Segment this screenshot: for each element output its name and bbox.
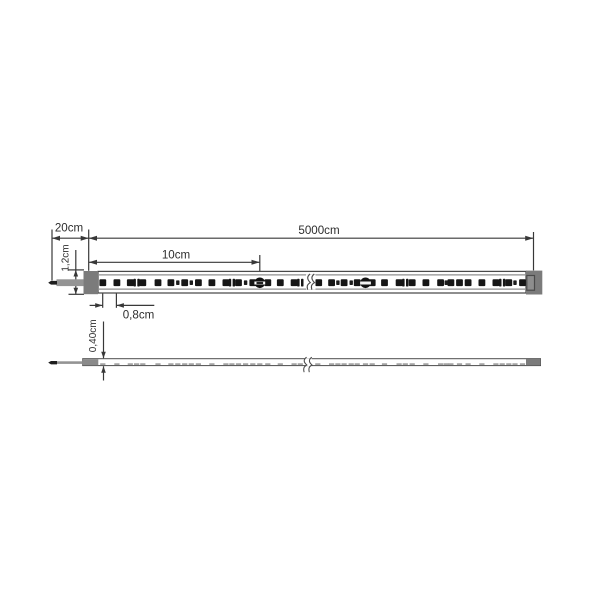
svg-text:5000cm: 5000cm — [298, 224, 339, 237]
svg-text:10cm: 10cm — [162, 248, 190, 261]
svg-text:1,2cm: 1,2cm — [60, 244, 71, 271]
svg-text:0,40cm: 0,40cm — [88, 319, 99, 352]
svg-text:0,8cm: 0,8cm — [123, 309, 155, 322]
svg-text:20cm: 20cm — [55, 222, 83, 235]
